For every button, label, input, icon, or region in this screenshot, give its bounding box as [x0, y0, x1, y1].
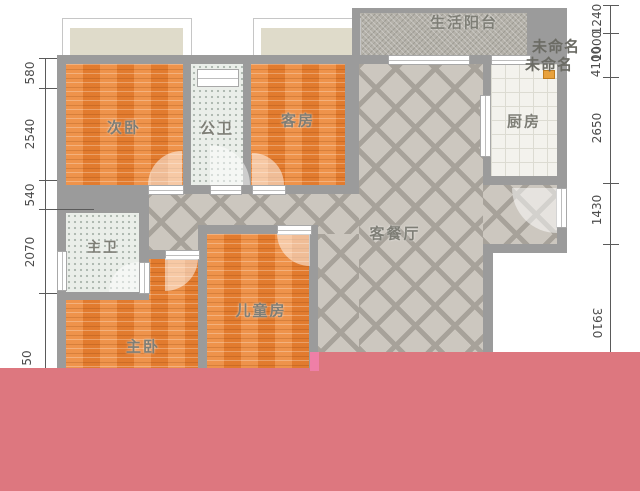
dimension-tick — [603, 33, 619, 34]
label-master-bedroom: 主卧 — [126, 336, 160, 357]
room-living-dining-area-lower[interactable] — [317, 234, 359, 352]
master-bathroom-door[interactable] — [139, 262, 150, 294]
label-guest-room: 客房 — [281, 110, 315, 131]
dim-right-3910: 3910 — [590, 308, 604, 339]
dim-left-540: 540 — [23, 184, 37, 207]
dim-right-4100: 4100 — [589, 47, 603, 78]
label-children-room: 儿童房 — [235, 300, 286, 321]
dim-right-2650: 2650 — [590, 113, 604, 144]
censor-block-bottom — [0, 368, 640, 491]
dim-right-1240: 1240 — [590, 4, 604, 35]
dimension-line-right — [610, 5, 611, 352]
dim-left-2540: 2540 — [23, 119, 37, 150]
dimension-tick — [603, 183, 619, 184]
public-bathroom-window — [197, 69, 239, 87]
wall-lower-right — [483, 244, 493, 352]
dimension-line-left — [45, 58, 46, 368]
public-bathroom-door[interactable] — [210, 185, 242, 195]
dimension-tick — [603, 77, 619, 78]
wall-master-bath-top — [57, 194, 149, 213]
wall-bed2-bath — [183, 60, 191, 194]
balcony-window-1 — [388, 55, 470, 65]
secondary-bedroom-door[interactable] — [148, 185, 184, 195]
dimension-tick — [603, 244, 619, 245]
label-master-bathroom: 主卫 — [87, 237, 119, 257]
wall-master-bath-bottom — [57, 292, 149, 300]
dim-left-50-partial: 50 — [20, 350, 34, 365]
master-bathroom-window — [57, 251, 67, 291]
wall-exterior-top — [57, 55, 360, 64]
label-secondary-bedroom: 次卧 — [107, 117, 141, 138]
bay-window-sill-left — [69, 27, 184, 58]
label-unnamed-2: 未命名 — [525, 54, 573, 75]
label-balcony: 生活阳台 — [430, 12, 498, 33]
dimension-tick — [39, 209, 94, 210]
dimension-tick — [39, 180, 57, 181]
dimension-tick — [39, 58, 57, 59]
dim-left-580: 580 — [23, 62, 37, 85]
label-public-bathroom: 公卫 — [200, 118, 234, 139]
entry-door[interactable] — [556, 188, 567, 228]
dimension-tick — [603, 5, 619, 6]
floor-plan-canvas: 生活阳台 未命名 未命名 次卧 公卫 客房 厨房 客餐厅 主卫 主卧 儿童房 5… — [0, 0, 640, 491]
wall-entry-bottom — [483, 244, 567, 253]
dim-left-2070: 2070 — [23, 237, 37, 268]
wall-corridor-top — [57, 185, 359, 194]
guest-room-door[interactable] — [252, 185, 286, 195]
dimension-tick — [39, 88, 57, 89]
bay-window-sill-right — [260, 27, 353, 58]
wall-guest-right — [345, 55, 359, 188]
wall-kitchen-bottom — [483, 176, 567, 185]
wall-children-left — [198, 225, 207, 368]
wall-balcony-left — [352, 8, 360, 62]
label-kitchen: 厨房 — [507, 111, 541, 132]
kitchen-sliding-door[interactable] — [480, 95, 491, 157]
room-living-dining-area-upper[interactable] — [359, 62, 483, 352]
label-living-dining: 客餐厅 — [369, 223, 420, 244]
wall-children-right — [309, 225, 318, 368]
censor-magenta-sliver — [310, 352, 319, 371]
dimension-tick — [39, 293, 57, 294]
dim-right-1430: 1430 — [590, 195, 604, 226]
